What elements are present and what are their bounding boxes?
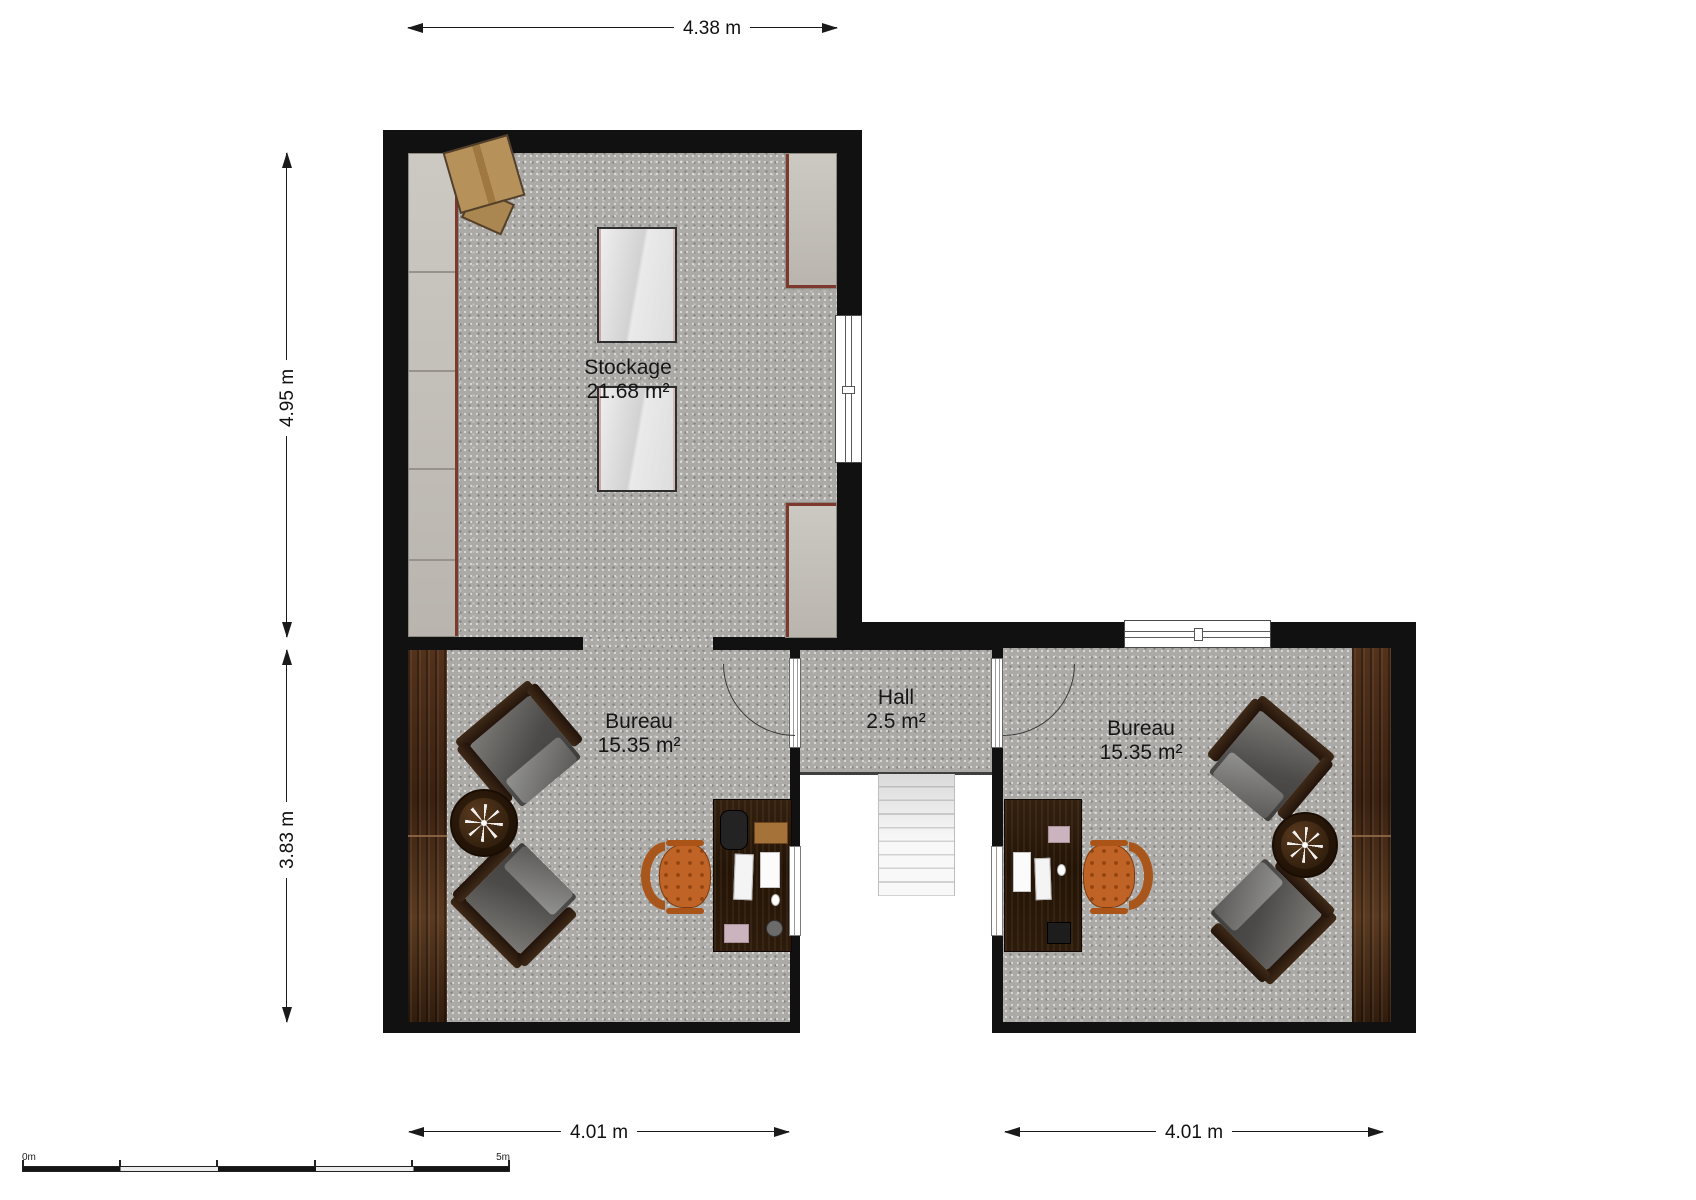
printer-icon [1047, 922, 1071, 944]
dimension-bottom-left-width: 4.01 m [409, 1131, 789, 1132]
arrowhead-icon [282, 649, 292, 665]
desk-clock-icon [766, 920, 783, 937]
window [835, 315, 862, 463]
room-name: Bureau [1100, 717, 1183, 741]
room-name: Bureau [598, 710, 681, 734]
arrowhead-icon [282, 152, 292, 168]
round-side-table [450, 789, 518, 857]
room-area: 15.35 m² [598, 734, 681, 758]
room-label-bureau-right: Bureau 15.35 m² [1100, 717, 1183, 765]
keyboard-icon [733, 854, 754, 901]
arrowhead-icon [282, 1007, 292, 1023]
room-name: Stockage [584, 356, 672, 380]
bag-icon [720, 810, 748, 850]
dimension-lower-left-height: 3.83 m [286, 650, 287, 1022]
wooden-tray-icon [754, 822, 788, 844]
room-label-stockage: Stockage 21.68 m² [584, 356, 672, 404]
door [991, 658, 1003, 748]
counter-top-right [785, 153, 837, 289]
stair-railing [991, 846, 1003, 936]
storage-table-upper [597, 227, 677, 343]
stair-railing [789, 846, 801, 936]
arrowhead-icon [1004, 1127, 1020, 1137]
arrowhead-icon [774, 1127, 790, 1137]
desk-pad-icon [1048, 826, 1070, 843]
office-chair [1080, 840, 1150, 914]
dimension-bottom-right-width: 4.01 m [1005, 1131, 1383, 1132]
floor-passage-opening [583, 637, 713, 651]
dimension-upper-left-height: 4.95 m [286, 153, 287, 637]
arrowhead-icon [822, 23, 838, 33]
counter-bottom-right [785, 502, 837, 638]
desk [1004, 799, 1082, 952]
dimension-top-width: 4.38 m [408, 27, 837, 28]
office-chair [644, 840, 714, 914]
round-side-table [1272, 812, 1338, 878]
dimension-label: 3.83 m [277, 802, 299, 878]
dimension-label: 4.01 m [1156, 1122, 1232, 1144]
monitor-icon [760, 852, 780, 888]
staircase [878, 774, 955, 896]
scale-bar: 0m 5m [22, 1152, 510, 1178]
keyboard-icon [1034, 858, 1051, 901]
mouse-icon [1057, 864, 1066, 876]
arrowhead-icon [407, 23, 423, 33]
wall-cabinet-column [408, 153, 459, 637]
room-area: 21.68 m² [584, 380, 672, 404]
floor-plan-canvas: Stockage 21.68 m² Bureau 15.35 m² Hall 2… [0, 0, 1696, 1200]
dimension-label: 4.38 m [674, 18, 750, 40]
scale-bar-segments [22, 1166, 510, 1172]
arrowhead-icon [1368, 1127, 1384, 1137]
room-area: 15.35 m² [1100, 741, 1183, 765]
room-label-bureau-left: Bureau 15.35 m² [598, 710, 681, 758]
wood-paneling-right [1352, 648, 1391, 1022]
room-label-hall: Hall 2.5 m² [866, 686, 926, 734]
scale-start-label: 0m [22, 1152, 36, 1163]
window [1124, 620, 1271, 648]
arrowhead-icon [282, 622, 292, 638]
dimension-label: 4.95 m [277, 360, 299, 436]
arrowhead-icon [408, 1127, 424, 1137]
room-area: 2.5 m² [866, 710, 926, 734]
desk [713, 799, 792, 952]
dimension-label: 4.01 m [561, 1122, 637, 1144]
mouse-icon [771, 894, 780, 906]
desk-pad-icon [724, 924, 749, 943]
wood-paneling-left [408, 650, 447, 1022]
room-name: Hall [866, 686, 926, 710]
monitor-icon [1013, 852, 1031, 892]
